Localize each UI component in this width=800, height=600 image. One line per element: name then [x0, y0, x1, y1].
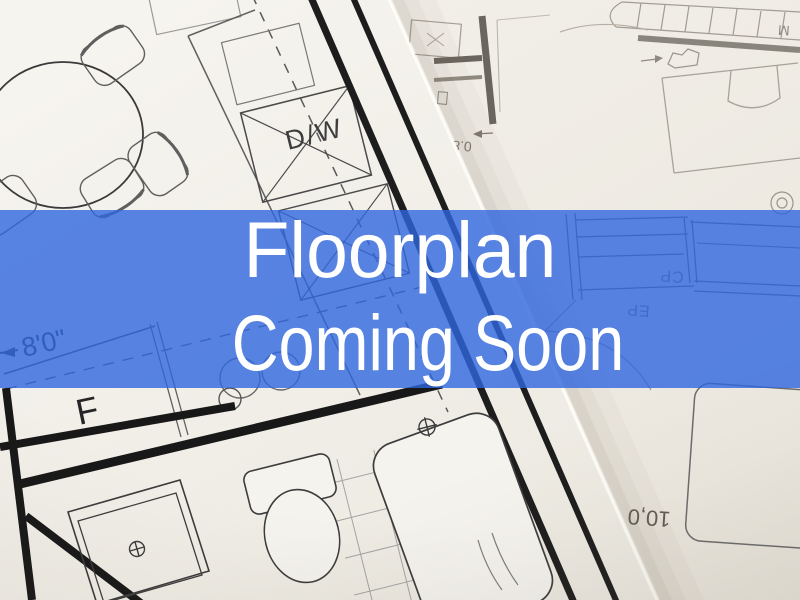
banner-title-line2: Coming Soon	[100, 303, 756, 382]
bed-m-label: M	[777, 22, 790, 39]
coming-soon-placeholder-image: 0.8 M CP EP 10,0	[0, 0, 800, 600]
banner-title-line1: Floorplan	[20, 210, 780, 289]
coming-soon-banner: Floorplan Coming Soon	[0, 210, 800, 388]
